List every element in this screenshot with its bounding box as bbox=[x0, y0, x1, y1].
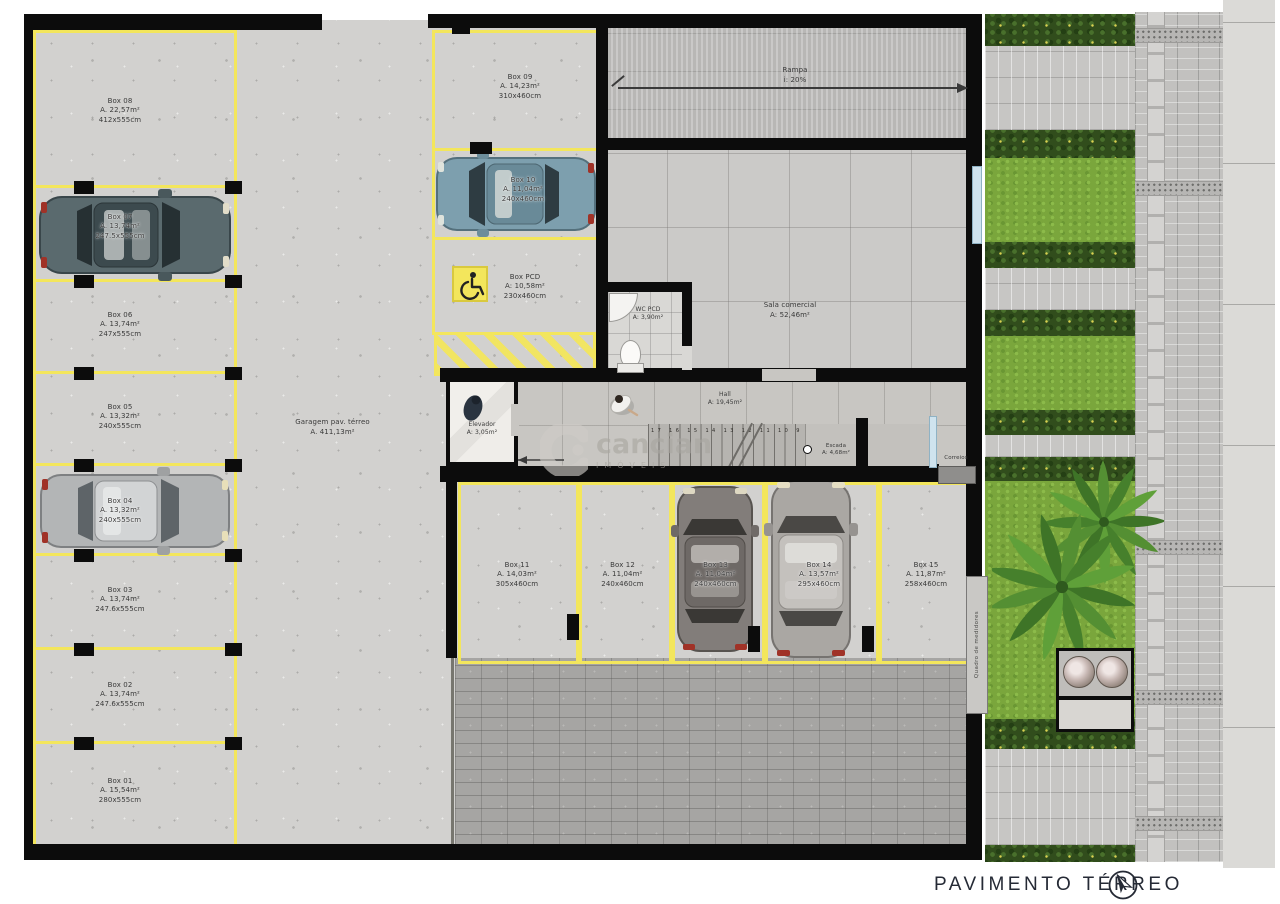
wc-toilet-tank bbox=[617, 363, 644, 373]
person-figure-hall bbox=[606, 390, 640, 422]
mailboxes-label: Correios bbox=[936, 455, 976, 462]
concrete-apron bbox=[1223, 0, 1275, 868]
driveway-pavement bbox=[455, 658, 978, 848]
ramp-label: Rampai: 20% bbox=[700, 66, 890, 86]
floor-plan-page: 17 16 15 14 13 12 11 10 9 8 7 6 5 4 3 2 … bbox=[0, 0, 1280, 904]
north-arrow-icon bbox=[1106, 868, 1140, 902]
tactile-paving-strip bbox=[1135, 181, 1223, 196]
window-glass bbox=[972, 166, 982, 244]
stall-label-box15: Box 15A. 11,87m²258x460cm bbox=[876, 561, 976, 589]
hall-label: HallA: 19,45m² bbox=[697, 391, 753, 407]
hedge-row bbox=[985, 242, 1135, 268]
garage-label: Garagem pav. térreoA. 411,13m² bbox=[240, 418, 425, 438]
stall-label-box-pcd: Box PCDA: 10,58m²230x460cm bbox=[470, 273, 580, 301]
pillar bbox=[225, 181, 242, 194]
door-opening bbox=[762, 369, 816, 381]
person-figure-elevator bbox=[458, 390, 488, 424]
drainage-strip bbox=[1147, 12, 1165, 862]
wall-segment bbox=[24, 14, 322, 30]
stair-step-numbers: 17 16 15 14 13 12 11 10 9 8 7 6 5 4 3 2 … bbox=[651, 428, 803, 434]
wall-segment bbox=[440, 466, 976, 482]
hedge-row bbox=[985, 845, 1135, 862]
stall-label-box07: Box 07A. 13,74m²247.5x555cm bbox=[30, 213, 210, 241]
pillar bbox=[225, 275, 242, 288]
wall-segment bbox=[604, 138, 976, 150]
ramp-slope-line bbox=[618, 87, 962, 89]
meter-board-label: Quadro de medidores bbox=[974, 611, 980, 678]
stall-label-box05: Box 05A. 13,32m²240x555cm bbox=[30, 403, 210, 431]
gas-tank bbox=[1063, 656, 1095, 688]
pillar bbox=[452, 24, 470, 34]
hedge-row bbox=[985, 410, 1135, 435]
wall-segment bbox=[24, 14, 33, 860]
paver-walkway bbox=[985, 268, 1135, 310]
pillar bbox=[470, 142, 492, 154]
meter-board: Quadro de medidores bbox=[966, 576, 988, 714]
stall-label-box02: Box 02A. 13,74m²247.6x555cm bbox=[30, 681, 210, 709]
wall-segment bbox=[24, 844, 978, 860]
stall-label-box10: Box 10A. 11,04m²240x460cm bbox=[443, 176, 603, 204]
stall-label-box11: Box 11A. 14,03m²305x460cm bbox=[458, 561, 576, 589]
pillar bbox=[567, 614, 579, 640]
pillar bbox=[225, 459, 242, 472]
wc-partition-wall bbox=[604, 282, 692, 292]
stall-label-box01: Box 01A. 15,54m²280x555cm bbox=[30, 777, 210, 805]
wc-label: WC PCDA: 3,90m² bbox=[610, 306, 686, 322]
stall-label-box04: Box 04A. 13,32m²240x555cm bbox=[30, 497, 210, 525]
commercial-room-label: Sala comercialA: 52,46m² bbox=[690, 301, 890, 321]
stall-label-box09: Box 09A. 14,23m²310x460cm bbox=[440, 73, 600, 101]
pillar bbox=[74, 459, 94, 472]
pillar bbox=[74, 367, 94, 380]
mailbox-unit bbox=[938, 466, 976, 484]
paver-walkway bbox=[985, 749, 1135, 845]
grass-panel bbox=[985, 336, 1135, 410]
tactile-paving-strip bbox=[1135, 28, 1223, 43]
pillar bbox=[225, 643, 242, 656]
wall-segment bbox=[446, 466, 457, 658]
pillar bbox=[74, 549, 94, 562]
elevator-label: ElevadorA: 3,05m² bbox=[448, 421, 516, 437]
stall-label-box06: Box 06A. 13,74m²247x555cm bbox=[30, 311, 210, 339]
grass-panel bbox=[985, 158, 1135, 242]
stall-label-box03: Box 03A. 13,74m²247.6x555cm bbox=[30, 586, 210, 614]
stair-direction-arrow bbox=[508, 454, 564, 466]
paver-walkway bbox=[985, 46, 1135, 130]
pavement-edge bbox=[451, 658, 454, 846]
enclosure-pad bbox=[1059, 700, 1131, 729]
tactile-paving-strip bbox=[1135, 816, 1223, 831]
pillar bbox=[862, 626, 874, 652]
hedge-row bbox=[985, 14, 1135, 46]
stair-label: EscadaA: 4,68m² bbox=[806, 443, 866, 457]
wc-door-opening bbox=[682, 346, 692, 370]
wall-segment bbox=[440, 368, 976, 382]
pillar bbox=[225, 737, 242, 750]
stall-label-box14: Box 14A. 13,57m²295x460cm bbox=[762, 561, 876, 589]
stall-label-box12: Box 12A. 11,04m²240x460cm bbox=[576, 561, 669, 589]
pillar bbox=[74, 643, 94, 656]
pillar bbox=[748, 626, 760, 652]
hedge-row bbox=[985, 130, 1135, 158]
pillar bbox=[225, 367, 242, 380]
hedge-row bbox=[985, 310, 1135, 336]
stall-label-box08: Box 08A. 22,57m²412x555cm bbox=[30, 97, 210, 125]
gas-tank bbox=[1096, 656, 1128, 688]
pillar bbox=[74, 275, 94, 288]
pillar bbox=[74, 737, 94, 750]
pillar bbox=[225, 549, 242, 562]
pillar bbox=[74, 181, 94, 194]
ramp-arrowhead bbox=[954, 81, 968, 95]
stall-label-box13: Box 13A. 11,04m²240x460cm bbox=[669, 561, 762, 589]
page-title: PAVIMENTO TÉRREO bbox=[934, 874, 1183, 896]
wall-segment bbox=[604, 14, 976, 28]
